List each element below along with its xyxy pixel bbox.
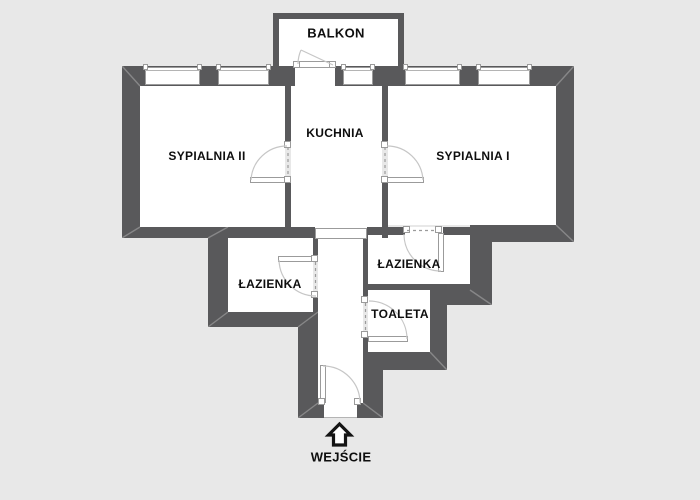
room-label-toaleta: TOALETA — [371, 307, 429, 321]
room-label-lazienka-right: ŁAZIENKA — [377, 257, 440, 271]
room-label-sypialnia-2: SYPIALNIA II — [168, 149, 245, 163]
room-label-sypialnia-1: SYPIALNIA I — [436, 149, 510, 163]
labels-layer: BALKON SYPIALNIA II KUCHNIA SYPIALNIA I … — [0, 0, 700, 500]
entrance-label: WEJŚCIE — [311, 450, 372, 465]
floor-plan: BALKON SYPIALNIA II KUCHNIA SYPIALNIA I … — [0, 0, 700, 500]
room-label-balkon: BALKON — [307, 26, 364, 41]
room-label-lazienka-left: ŁAZIENKA — [238, 277, 301, 291]
room-label-kuchnia: KUCHNIA — [306, 126, 363, 140]
